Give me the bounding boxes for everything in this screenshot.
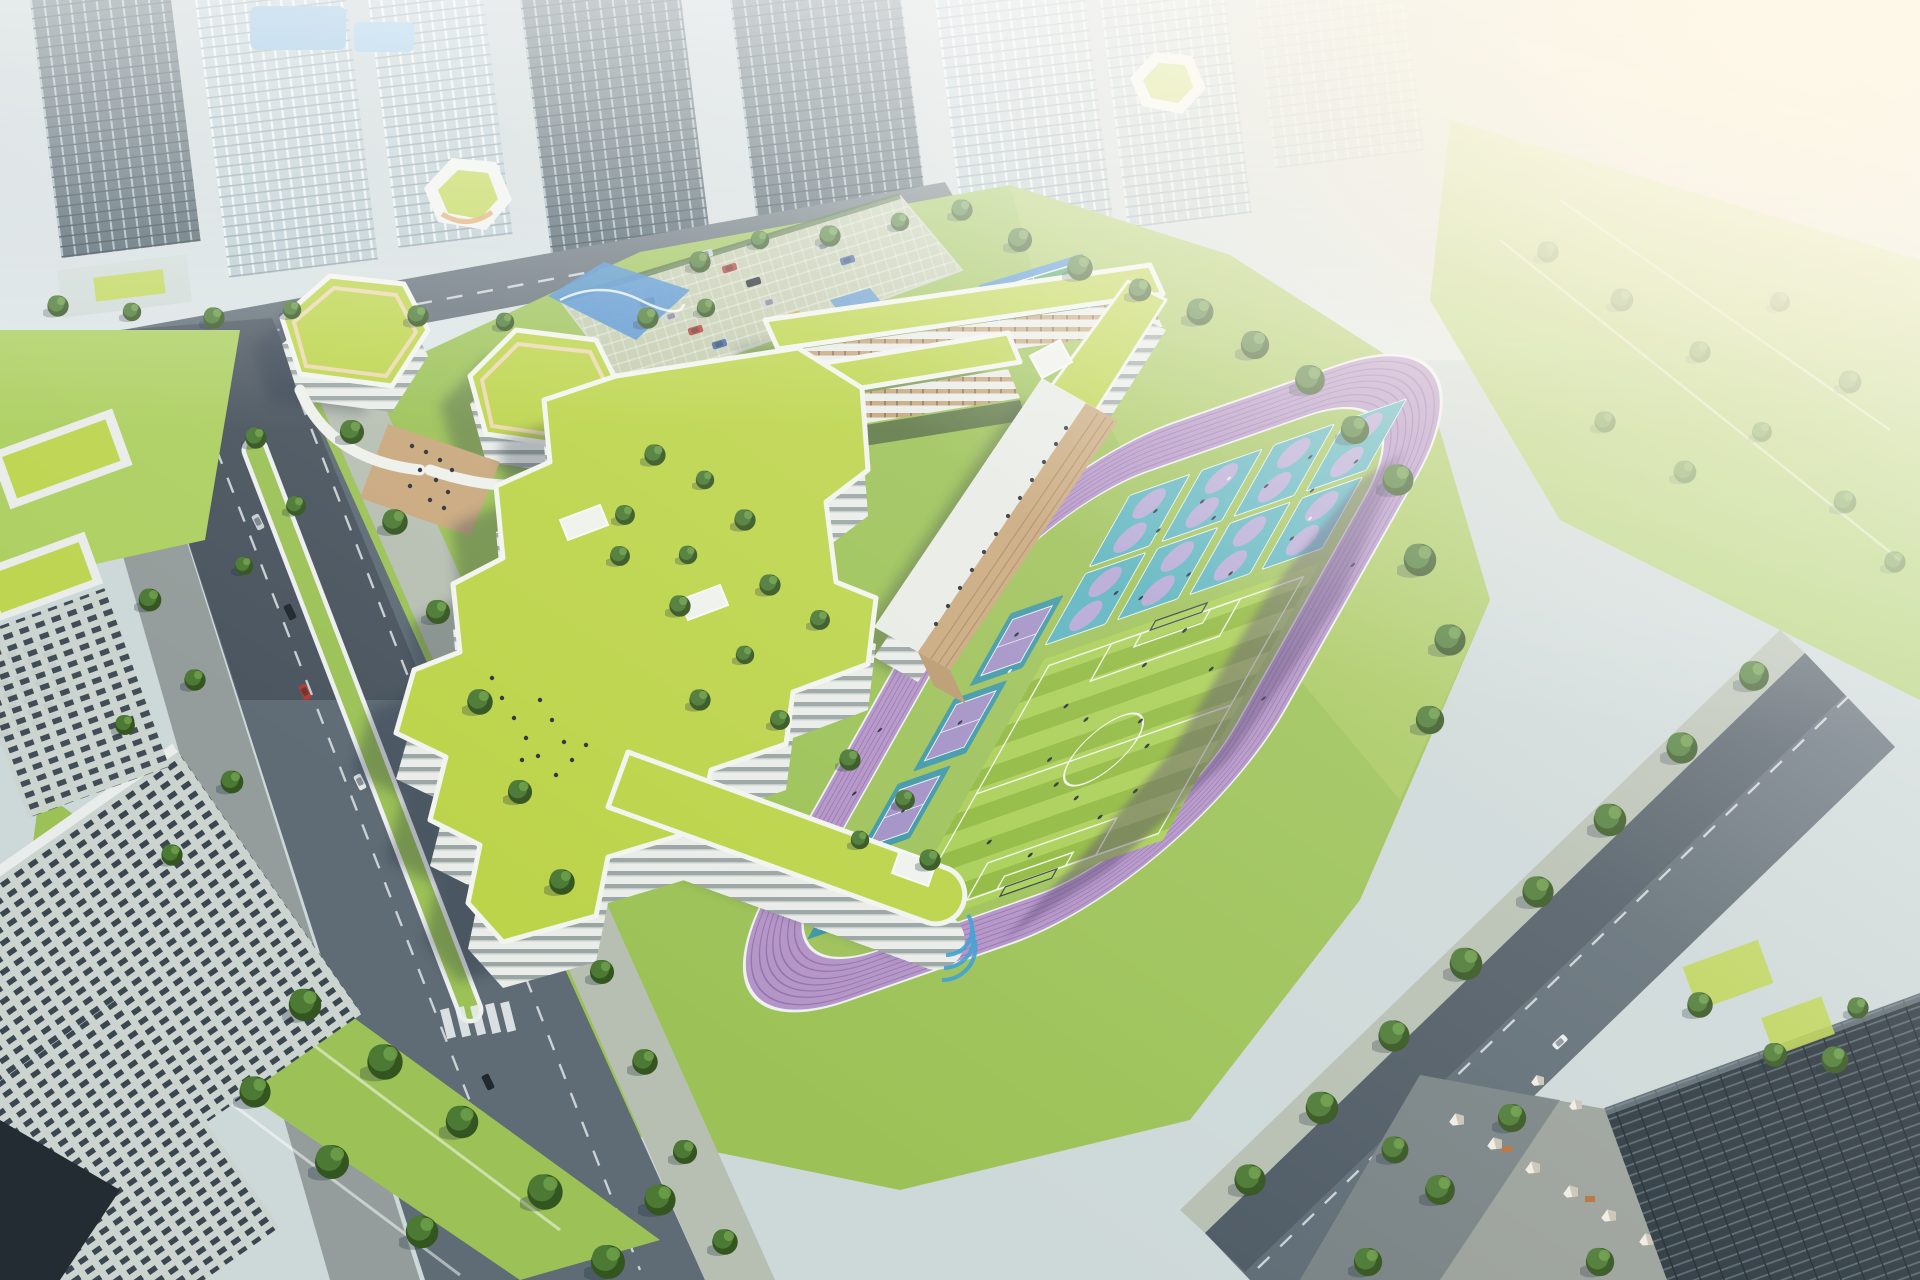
aerial-rendering-canvas	[0, 0, 1920, 1280]
campus-aerial-scene	[0, 0, 1920, 1280]
sun-glare	[0, 0, 1920, 1280]
